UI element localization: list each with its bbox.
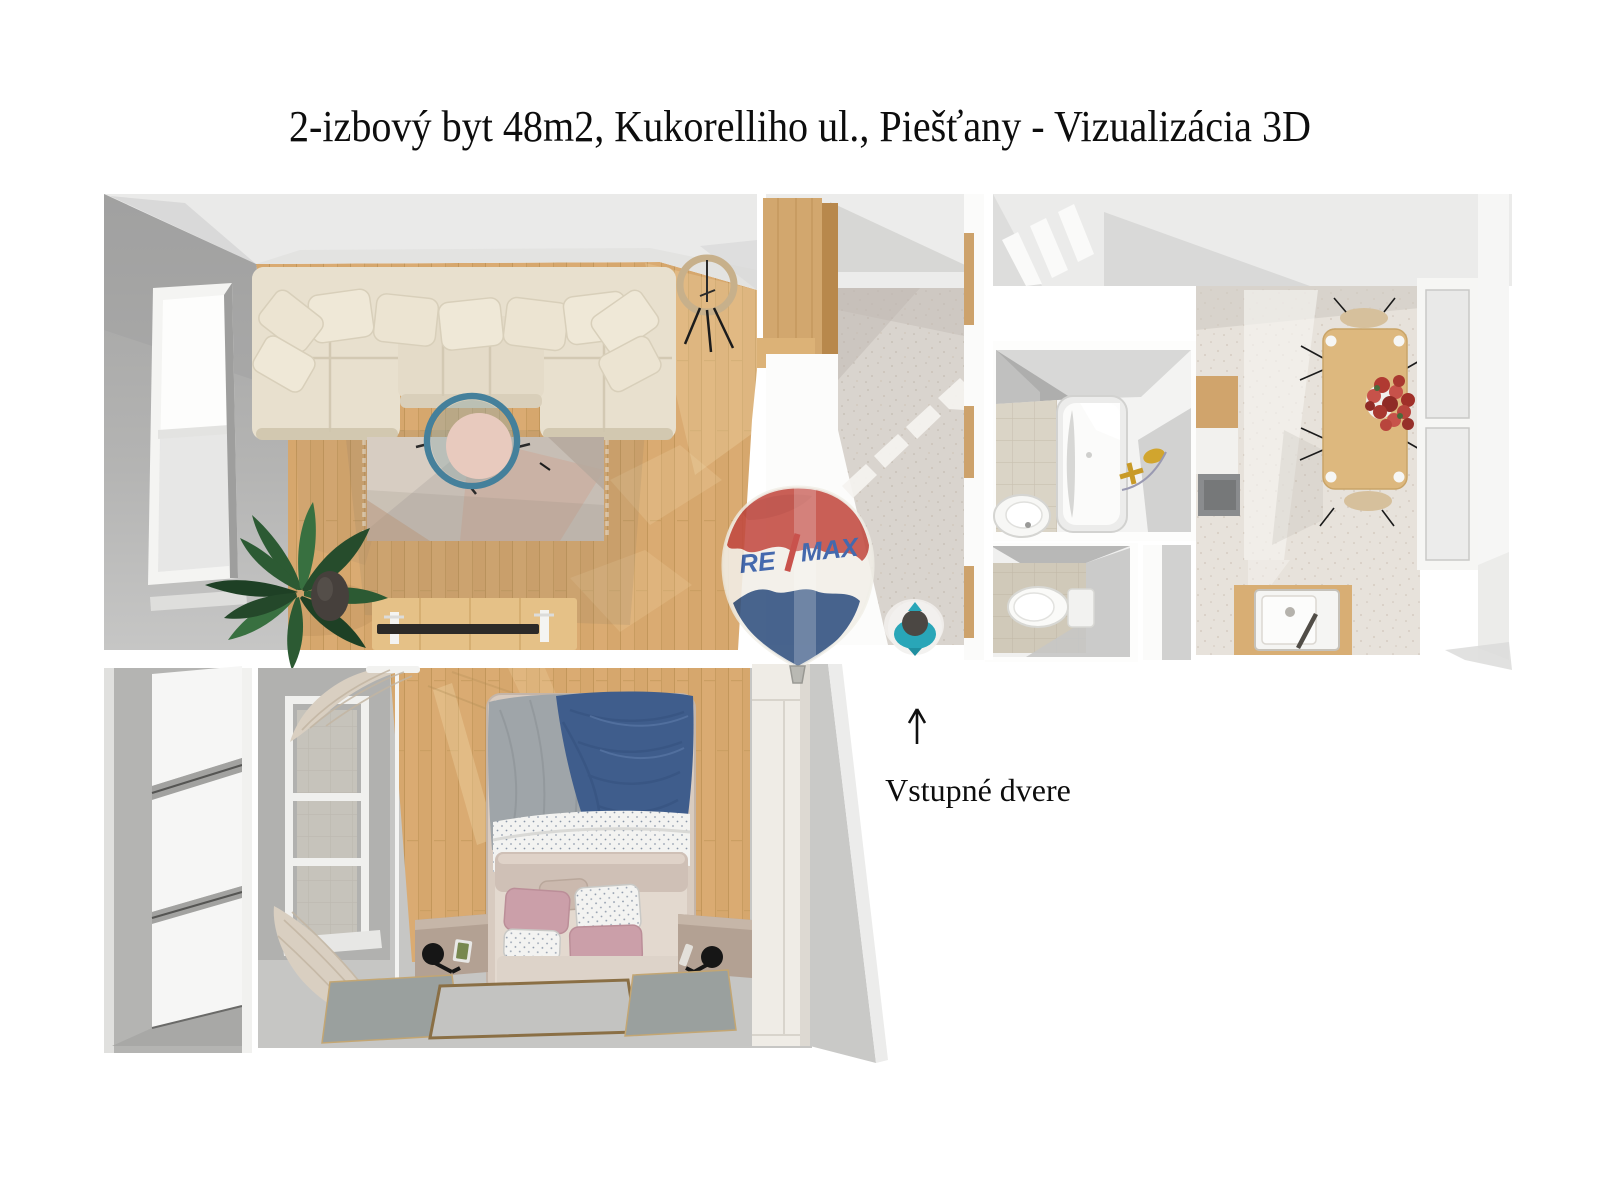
svg-text:RE: RE [738, 545, 778, 579]
svg-text:MAX: MAX [799, 532, 861, 568]
svg-text:Vstupné dvere: Vstupné dvere [885, 772, 1071, 808]
svg-text:2-izbový byt 48m2, Kukorelliho: 2-izbový byt 48m2, Kukorelliho ul., Pieš… [289, 102, 1311, 151]
